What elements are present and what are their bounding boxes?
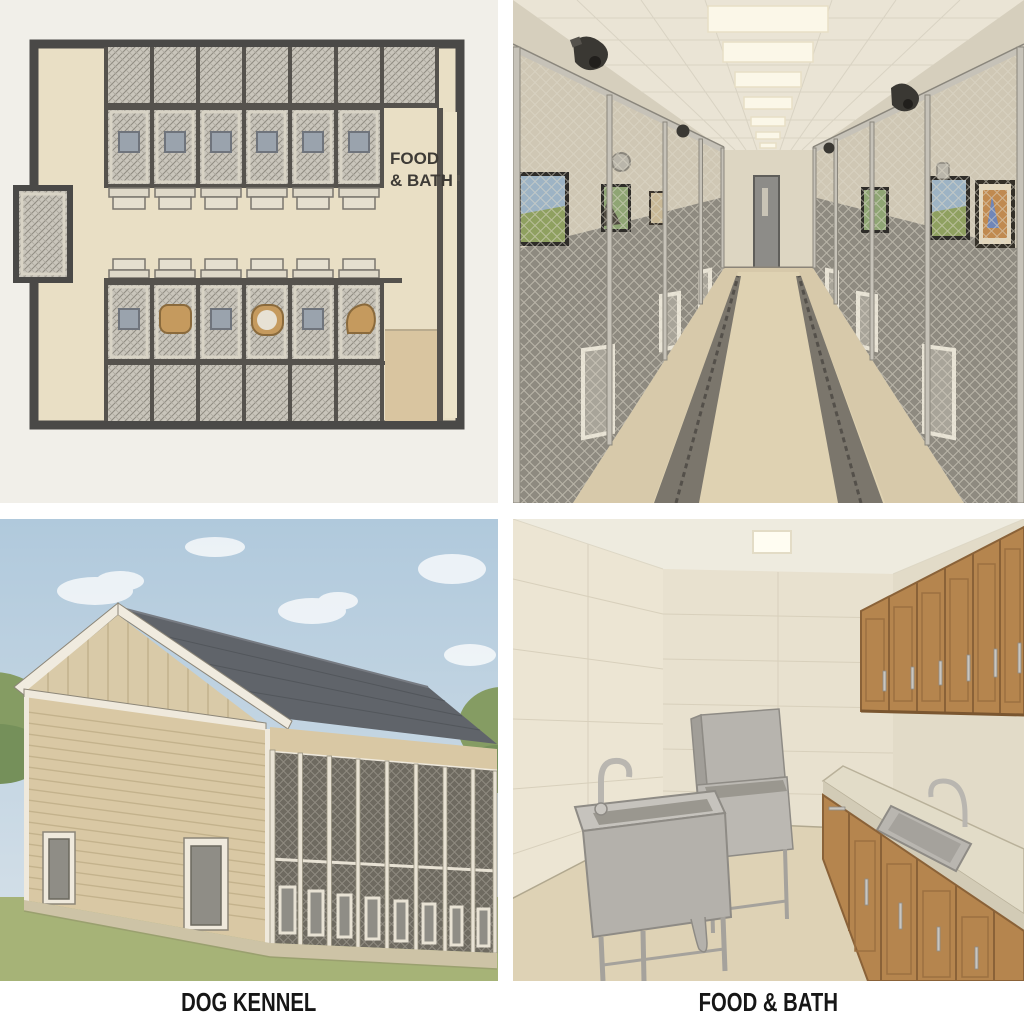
ceiling-light bbox=[753, 531, 791, 553]
dog-bed bbox=[160, 305, 191, 333]
gable-wall bbox=[24, 697, 270, 943]
four-panel-illustration: FOOD & BATH bbox=[0, 0, 1024, 1024]
washroom-scene bbox=[513, 519, 1024, 981]
washroom-panel bbox=[513, 519, 1024, 981]
exterior-panel bbox=[0, 519, 498, 981]
svg-text:FOOD: FOOD bbox=[390, 149, 439, 168]
exterior-scene bbox=[0, 519, 498, 981]
stall-window bbox=[119, 132, 139, 152]
plan-bottom-kennel-row bbox=[104, 259, 402, 421]
door-window bbox=[762, 188, 768, 216]
caption-dog-kennel-text: DOG KENNEL bbox=[181, 987, 316, 1018]
caption-food-bath-text: FOOD & BATH bbox=[699, 987, 838, 1018]
caption-band: DOG KENNEL FOOD & BATH bbox=[0, 981, 1024, 1024]
kennel-run-screens bbox=[270, 750, 497, 954]
caption-dog-kennel: DOG KENNEL bbox=[0, 981, 498, 1024]
corridor-end-wall bbox=[724, 150, 813, 268]
plan-indoor-stalls-top bbox=[106, 108, 382, 186]
plan-left-room bbox=[16, 188, 70, 280]
floor-plan-panel: FOOD & BATH bbox=[0, 0, 498, 503]
corridor-panel bbox=[513, 0, 1024, 503]
caption-food-bath: FOOD & BATH bbox=[513, 981, 1024, 1024]
svg-text:& BATH: & BATH bbox=[390, 171, 453, 190]
plan-indoor-stalls-bottom bbox=[106, 283, 382, 361]
corridor-scene bbox=[513, 0, 1024, 503]
floor-plan-drawing: FOOD & BATH bbox=[0, 0, 498, 503]
